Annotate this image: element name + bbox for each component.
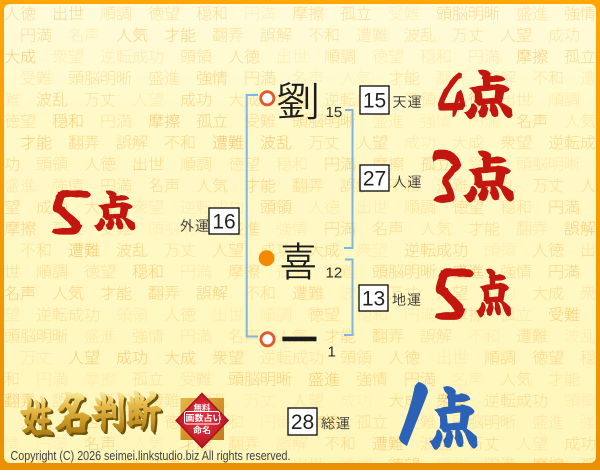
svg-text:Copyright (C) 2026 seimei.link: Copyright (C) 2026 seimei.linkstudio.biz…: [11, 449, 291, 463]
svg-text:27: 27: [363, 168, 386, 191]
svg-text:12: 12: [326, 265, 343, 282]
svg-text:13: 13: [362, 288, 385, 311]
svg-text:28: 28: [291, 411, 314, 434]
svg-text:16: 16: [212, 211, 235, 234]
svg-text:15: 15: [326, 104, 343, 121]
svg-text:1: 1: [328, 344, 336, 361]
svg-text:15: 15: [363, 90, 386, 113]
